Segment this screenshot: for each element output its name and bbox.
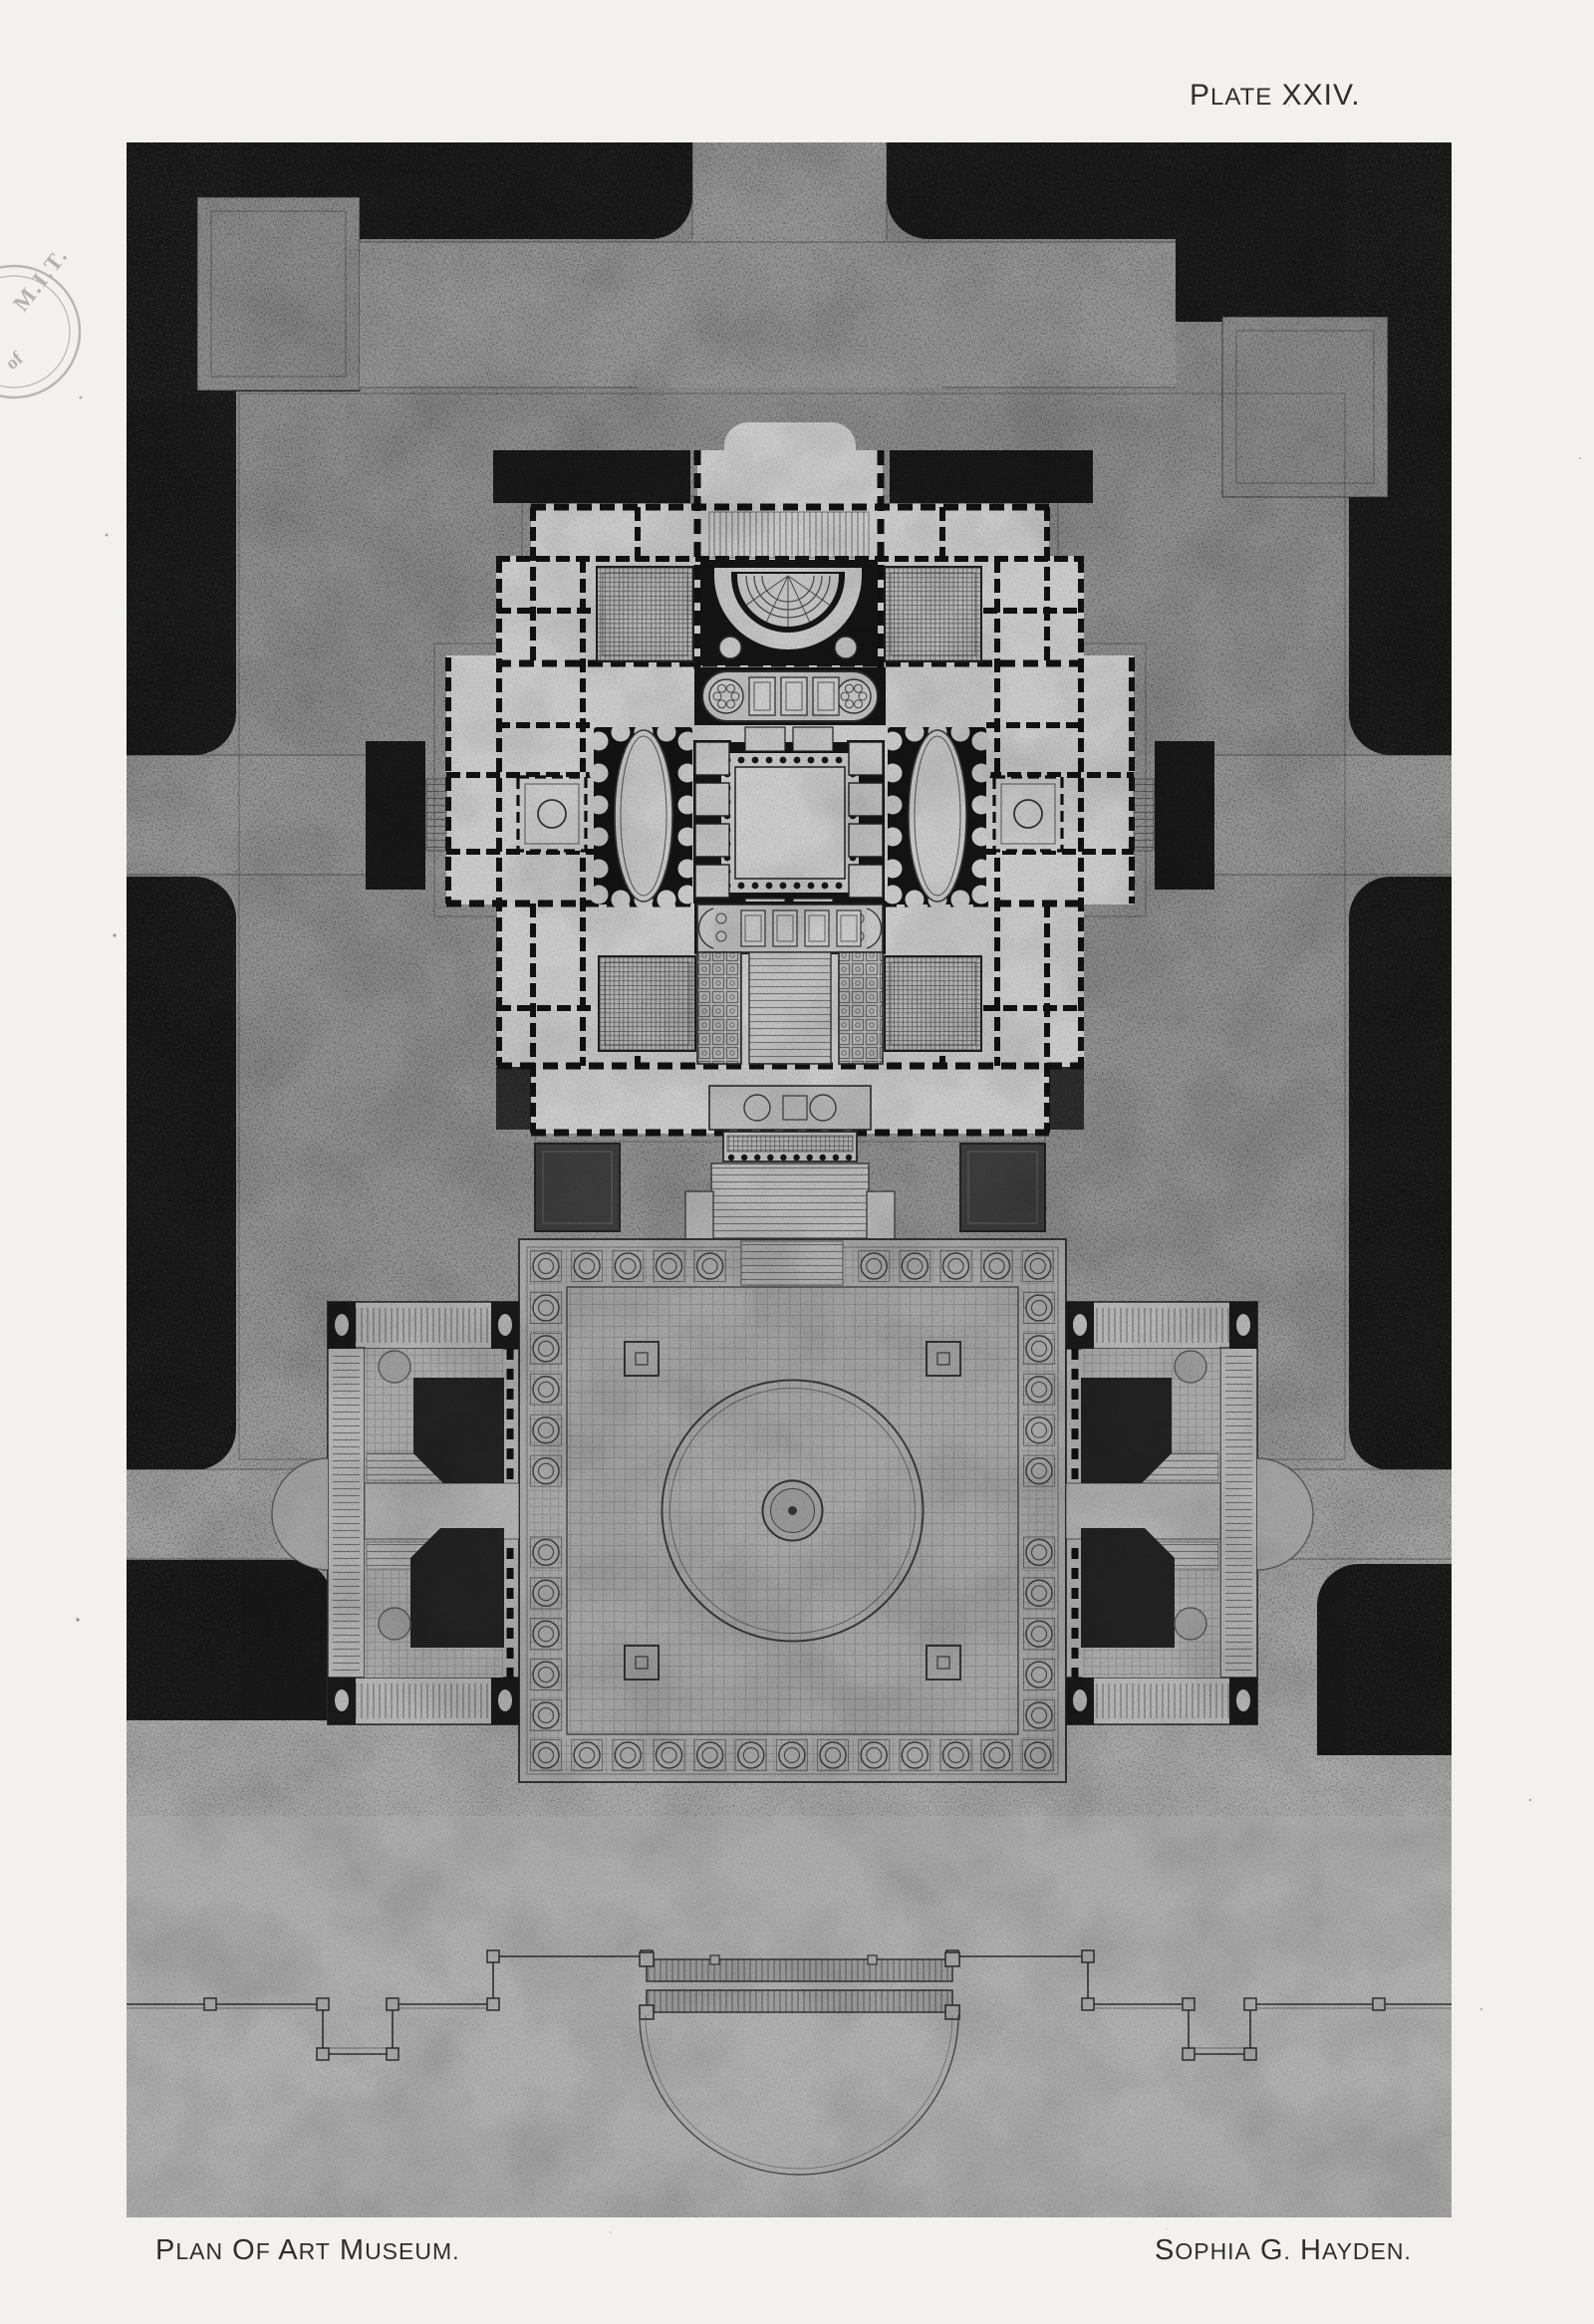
- svg-text:PLAN OF ART MUSEUM.: PLAN OF ART MUSEUM.: [155, 2234, 460, 2266]
- svg-text:PLATE XXIV.: PLATE XXIV.: [1190, 79, 1361, 112]
- svg-text:SOPHIA G. HAYDEN.: SOPHIA G. HAYDEN.: [1155, 2234, 1412, 2266]
